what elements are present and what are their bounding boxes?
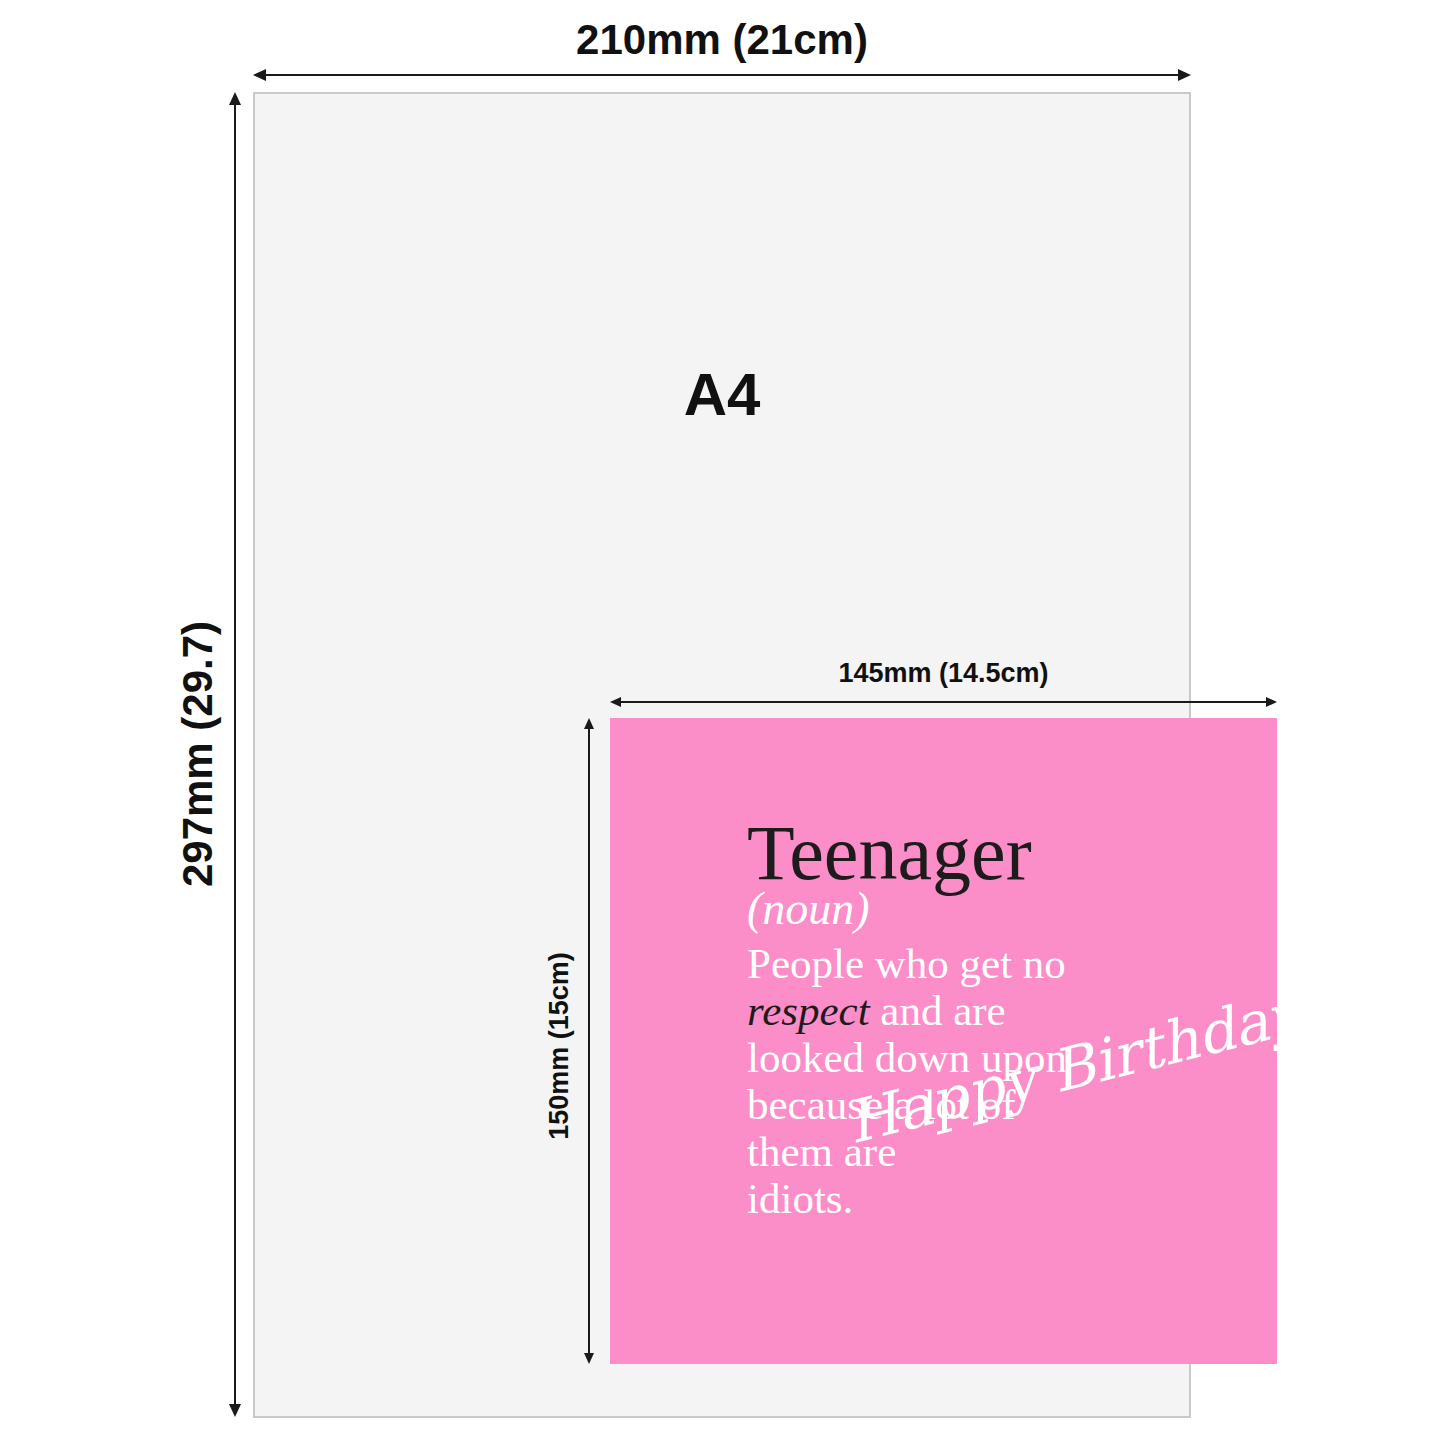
card-subtitle: (noun) <box>747 886 870 932</box>
definition-line: respect and are <box>747 987 1067 1034</box>
a4-height-arrow <box>229 92 241 1417</box>
arrowhead-down-icon <box>229 1404 241 1417</box>
arrowhead-up-icon <box>229 92 241 105</box>
a4-size-title: A4 <box>253 360 1191 429</box>
arrowhead-down-icon <box>584 1353 594 1364</box>
a4-width-arrow-line <box>263 74 1181 76</box>
a4-width-arrow <box>253 69 1191 81</box>
card-height-arrow-line <box>588 728 590 1354</box>
card-width-arrow-line <box>620 701 1267 703</box>
card-height-label: 150mm (15cm) <box>544 952 575 1140</box>
card-width-label: 145mm (14.5cm) <box>610 658 1277 689</box>
card-height-arrow <box>583 718 595 1364</box>
a4-height-arrow-line <box>234 102 236 1407</box>
arrowhead-left-icon <box>253 69 266 81</box>
arrowhead-left-icon <box>610 697 621 707</box>
size-comparison-diagram: 210mm (21cm) 297mm (29.7) A4 145mm (14.5… <box>0 0 1445 1445</box>
arrowhead-right-icon <box>1178 69 1191 81</box>
a4-height-label: 297mm (29.7) <box>174 621 222 887</box>
a4-width-label: 210mm (21cm) <box>253 16 1191 64</box>
emphasized-word: respect <box>747 987 870 1034</box>
greeting-card: Teenager (noun) People who get no respec… <box>610 718 1277 1364</box>
definition-line-rest: and are <box>870 987 1006 1034</box>
arrowhead-up-icon <box>584 718 594 729</box>
arrowhead-right-icon <box>1266 697 1277 707</box>
definition-line: People who get no <box>747 940 1067 987</box>
definition-line: idiots. <box>747 1175 1067 1222</box>
card-title: Teenager <box>747 814 1032 892</box>
card-width-arrow <box>610 696 1277 708</box>
